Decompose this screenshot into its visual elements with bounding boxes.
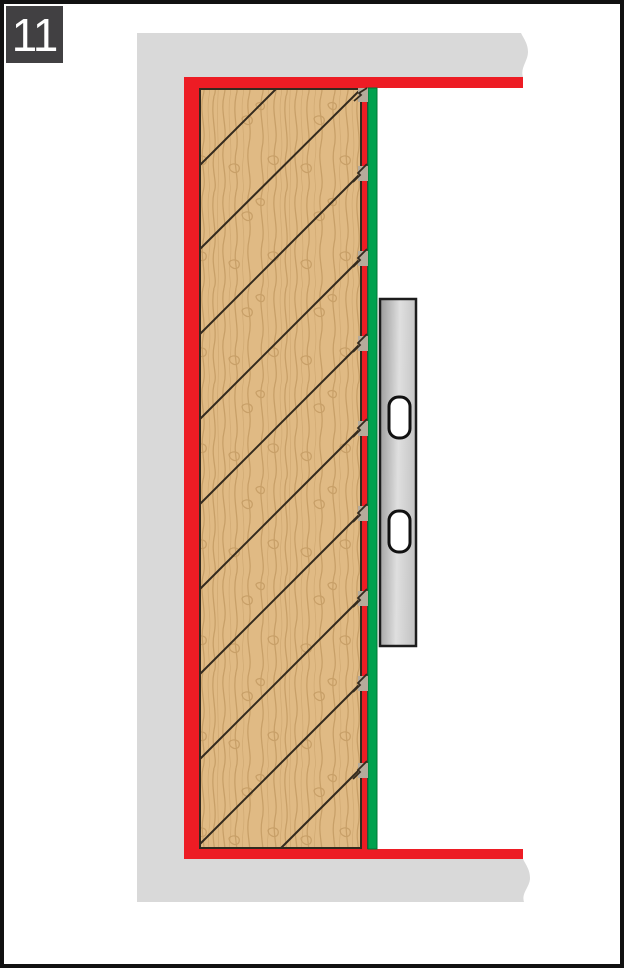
wall-top-section xyxy=(137,33,528,77)
red-seal-bottom xyxy=(184,849,523,859)
red-seal-strip xyxy=(362,88,367,849)
green-seal-strip xyxy=(368,88,377,849)
instruction-figure: 11 xyxy=(0,0,624,968)
installation-diagram xyxy=(0,0,624,968)
mounting-slot-bottom xyxy=(389,511,410,552)
wall-left-section xyxy=(137,33,184,902)
mounting-plate xyxy=(380,299,416,646)
step-number-badge: 11 xyxy=(6,6,63,63)
step-number: 11 xyxy=(12,12,58,58)
red-seal-left xyxy=(184,77,199,859)
red-seal-top xyxy=(184,77,523,88)
mounting-slot-top xyxy=(389,397,410,438)
wall-bottom-section xyxy=(137,859,530,902)
